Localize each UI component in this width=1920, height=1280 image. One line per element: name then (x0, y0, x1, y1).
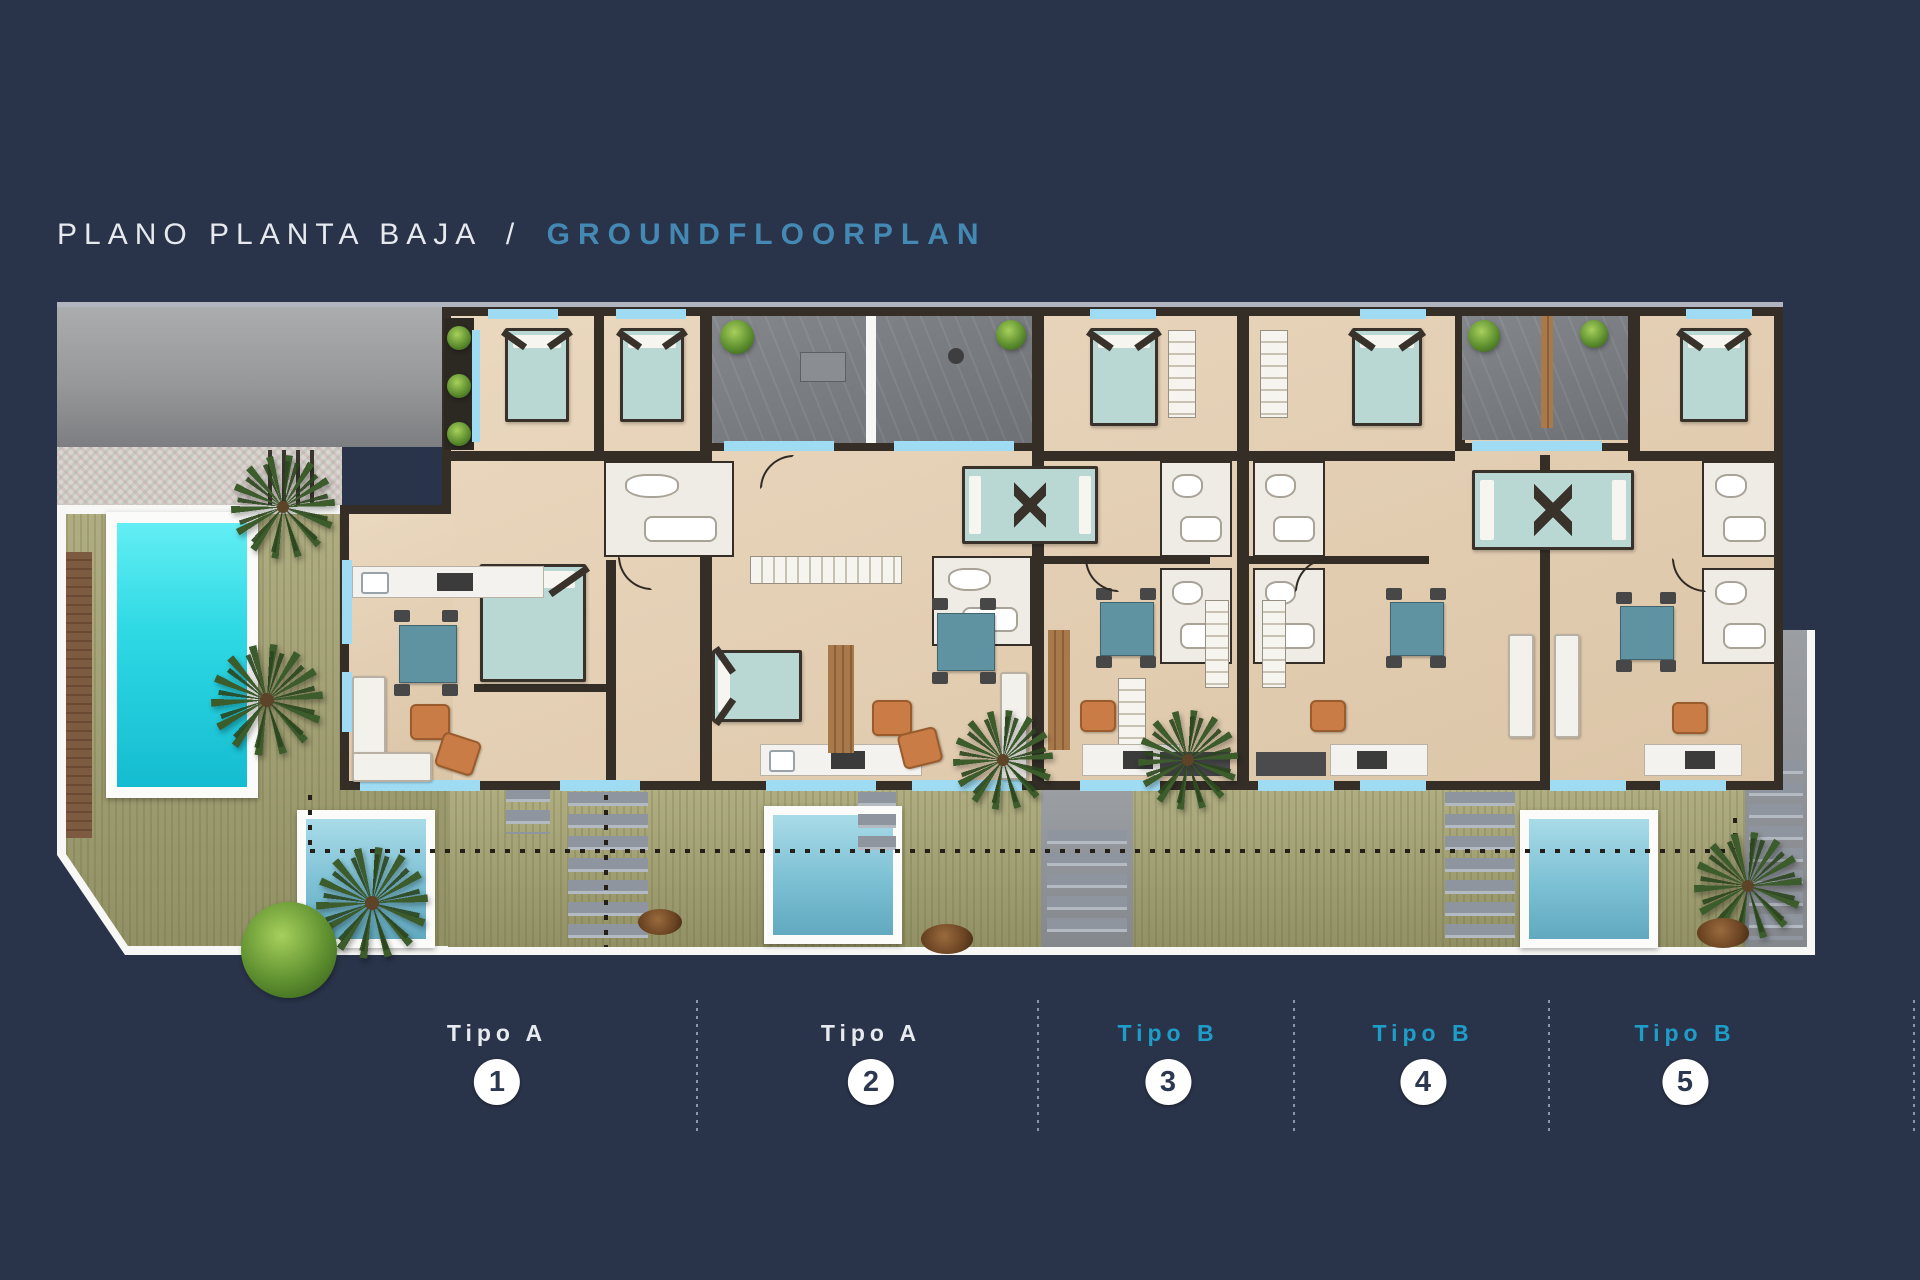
beds-units-2-3 (962, 466, 1098, 544)
interior-wall (442, 451, 712, 461)
plunge-pool-3 (1520, 810, 1658, 948)
dining-set-unit-5 (1606, 592, 1686, 672)
dining-set-unit-1 (382, 608, 472, 698)
interior-wall (594, 316, 604, 451)
bed-unit-2 (712, 650, 802, 722)
window-strip (1686, 309, 1752, 319)
bathroom-unit-3a (1160, 461, 1232, 557)
patio-wall (1628, 316, 1640, 451)
unit-type-label: Tipo B (1634, 1020, 1735, 1047)
page-title: PLANO PLANTA BAJA / GROUNDFLOORPLAN (57, 218, 987, 252)
terrace-dotted-line (310, 849, 1735, 853)
unit-label-5: Tipo B 5 (1634, 1020, 1735, 1105)
entry-steps-unit-1 (506, 788, 550, 834)
interior-wall (1044, 556, 1210, 564)
title-separator: / (506, 218, 521, 251)
armchair (1310, 700, 1346, 732)
window-strip (560, 780, 640, 791)
patio-table (800, 352, 846, 382)
bed-unit-1 (505, 328, 569, 422)
terrace-dotted-line (604, 795, 608, 947)
door-panel (828, 645, 854, 753)
entry-mat (1256, 752, 1326, 776)
window-strip (342, 560, 352, 644)
dining-set-unit-4 (1376, 588, 1456, 668)
central-walkway (1041, 790, 1133, 947)
window-strip (1360, 309, 1426, 319)
unit-number-badge: 3 (1145, 1059, 1191, 1105)
sofa-unit-1 (352, 752, 432, 782)
sofa-unit-5 (1554, 634, 1580, 738)
bathroom-unit-5a (1702, 461, 1776, 557)
party-wall-2-3 (1032, 316, 1044, 781)
armchair (1080, 700, 1116, 732)
armchair (872, 700, 912, 736)
bathroom-unit-4a (1253, 461, 1325, 557)
title-secondary: GROUNDFLOORPLAN (547, 218, 987, 251)
patio-plant (1580, 320, 1608, 348)
beds-units-4-5 (1472, 470, 1634, 550)
central-walkway-stairs (1047, 830, 1127, 940)
title-primary: PLANO PLANTA BAJA (57, 218, 481, 251)
bed-unit-5 (1680, 328, 1748, 422)
terrace-dotted-line (308, 795, 312, 849)
section-separator (1913, 1000, 1915, 1136)
unit-type-label: Tipo A (821, 1020, 921, 1047)
planter-bush (447, 374, 471, 398)
planter-bush (447, 326, 471, 350)
wardrobe (1260, 330, 1288, 418)
window-strip (1258, 780, 1334, 791)
wardrobe (1205, 600, 1229, 688)
main-pool-water (117, 523, 247, 787)
interior-wall (474, 684, 614, 692)
wardrobe (1262, 600, 1286, 688)
window-strip (724, 441, 834, 451)
dining-set-unit-3 (1086, 588, 1166, 668)
unit-type-label: Tipo B (1372, 1020, 1473, 1047)
wardrobe (1168, 330, 1196, 418)
kitchen-unit-4 (1330, 744, 1428, 776)
window-strip (342, 672, 352, 732)
sofa-unit-4 (1508, 634, 1534, 738)
window-strip (1360, 780, 1426, 791)
wardrobe (750, 556, 902, 584)
patio-divider-plank (1541, 316, 1553, 428)
patio-divider (866, 316, 876, 443)
wood-deck (66, 552, 92, 838)
bed-unit-4 (1352, 328, 1422, 426)
party-wall-3-4 (1237, 316, 1249, 781)
unit-label-3: Tipo B 3 (1117, 1020, 1218, 1105)
unit-type-label: Tipo A (447, 1020, 547, 1047)
window-strip (1550, 780, 1626, 791)
window-strip (616, 309, 686, 319)
unit-number-badge: 4 (1400, 1059, 1446, 1105)
window-strip (766, 780, 876, 791)
patio-plant (996, 320, 1026, 350)
entry-steps-unit-2 (858, 792, 896, 856)
interior-wall (1628, 451, 1783, 461)
plunge-pool-3-water (1529, 819, 1649, 939)
window-strip (488, 309, 558, 319)
bed-unit-3 (1090, 328, 1158, 426)
window-strip (894, 441, 1014, 451)
driveway (57, 307, 442, 447)
patio-plant (1468, 320, 1500, 352)
window-strip (1472, 441, 1602, 451)
palm-tree (231, 455, 335, 559)
unit-label-1: Tipo A 1 (447, 1020, 547, 1105)
palm-tree (1138, 710, 1238, 810)
dining-set-unit-2 (920, 596, 1010, 686)
section-separator (1293, 1000, 1295, 1136)
palm-tree (953, 710, 1053, 810)
section-separator (696, 1000, 698, 1136)
interior-wall (606, 560, 616, 781)
patio-bbq (948, 348, 964, 364)
unit-number-badge: 5 (1662, 1059, 1708, 1105)
bed-unit-1 (620, 328, 684, 422)
ground-floor-plan-page: PLANO PLANTA BAJA / GROUNDFLOORPLAN (0, 0, 1920, 1280)
garden-bush (241, 902, 337, 998)
wood-cabinet (1048, 630, 1070, 750)
interior-wall (1044, 451, 1237, 461)
unit-number-badge: 1 (474, 1059, 520, 1105)
kitchen-unit-5 (1644, 744, 1742, 776)
ground-shrub (1697, 918, 1749, 948)
interior-wall (1249, 451, 1455, 461)
window-strip (472, 330, 480, 442)
bathroom-unit-5b (1702, 568, 1776, 664)
ground-shrub (638, 909, 682, 935)
section-separator (1548, 1000, 1550, 1136)
kitchen-unit-1 (352, 566, 544, 598)
bathroom-unit-1 (604, 461, 734, 557)
planter-bush (447, 422, 471, 446)
unit-number-badge: 2 (848, 1059, 894, 1105)
garden-stairs-1 (568, 792, 648, 942)
unit-type-label: Tipo B (1117, 1020, 1218, 1047)
interior-wall (1249, 556, 1429, 564)
garden-stairs-4 (1445, 792, 1515, 942)
unit-label-2: Tipo A 2 (821, 1020, 921, 1105)
garden-border-right (1807, 630, 1815, 955)
window-strip (1660, 780, 1726, 791)
palm-tree (211, 644, 323, 756)
window-strip (1090, 309, 1156, 319)
armchair (1672, 702, 1708, 734)
patio-plant (720, 320, 754, 354)
ground-shrub (921, 924, 973, 954)
section-separator (1037, 1000, 1039, 1136)
unit-label-4: Tipo B 4 (1372, 1020, 1473, 1105)
